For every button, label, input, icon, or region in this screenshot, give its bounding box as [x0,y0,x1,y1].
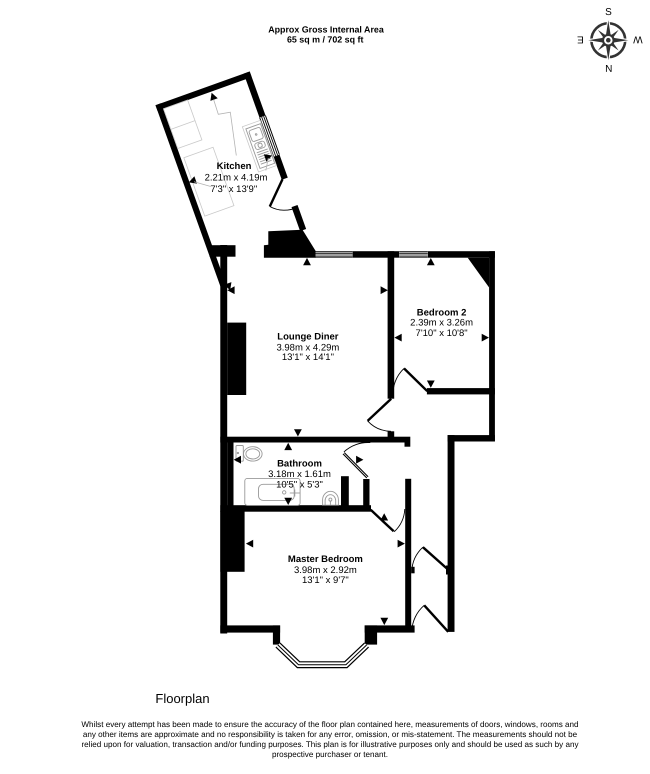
svg-text:3.18m x 1.61m: 3.18m x 1.61m [268,469,331,480]
svg-text:W: W [633,33,643,44]
svg-text:N: N [605,62,612,73]
svg-text:Floorplan: Floorplan [155,691,209,706]
svg-text:prospective purchaser or tenan: prospective purchaser or tenant. [272,750,388,759]
svg-text:E: E [577,33,584,44]
svg-text:Master Bedroom: Master Bedroom [288,554,363,565]
svg-text:Whilst every attempt has been: Whilst every attempt has been made to en… [81,720,578,729]
svg-text:65 sq m / 702 sq ft: 65 sq m / 702 sq ft [287,35,364,45]
svg-text:Approx Gross Internal Area: Approx Gross Internal Area [268,25,384,35]
svg-text:7'3" x 13'9": 7'3" x 13'9" [210,184,257,195]
svg-text:2.21m x 4.19m: 2.21m x 4.19m [205,173,268,184]
svg-text:any other items are approximat: any other items are approximate and no r… [83,730,578,739]
svg-text:13'1" x 14'1": 13'1" x 14'1" [282,352,334,363]
svg-text:Lounge Diner: Lounge Diner [277,331,339,342]
svg-text:7'10" x 10'8": 7'10" x 10'8" [416,328,468,339]
svg-text:S: S [605,7,612,18]
svg-text:13'1" x 9'7": 13'1" x 9'7" [302,575,349,586]
svg-text:relied upon for valuation, tra: relied upon for valuation, transaction a… [81,740,579,749]
svg-text:Kitchen: Kitchen [217,161,252,172]
svg-text:10'5" x 5'3": 10'5" x 5'3" [276,480,323,491]
